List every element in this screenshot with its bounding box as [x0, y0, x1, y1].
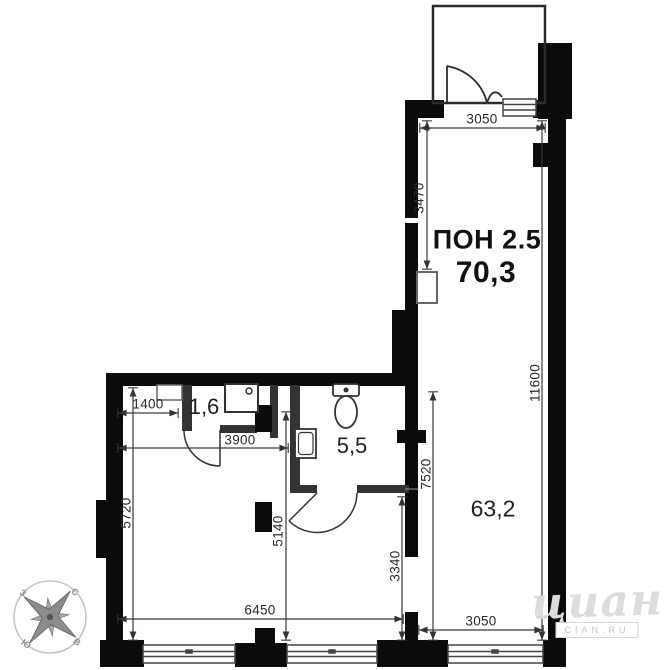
dim-left-height: 5720 [119, 497, 134, 528]
floor-plan-drawing [0, 0, 670, 670]
room-label-shower: 1,6 [189, 394, 220, 420]
bottom-wall-corner-right [543, 640, 566, 667]
bathroom-door [289, 493, 357, 532]
entrance-door-swing-arc [447, 66, 487, 103]
window-right [448, 645, 543, 663]
exterior-walls [96, 43, 572, 667]
bottom-wall-pier-bump [255, 628, 275, 644]
entrance-door-swing-arc-2 [487, 92, 502, 103]
bottom-wall-pier [235, 643, 287, 667]
vestibule-window [503, 99, 536, 116]
vestibule-outline [433, 6, 545, 103]
block-top-wall [106, 373, 418, 386]
dim-bottom-right-width: 3050 [465, 614, 496, 629]
unit-type-label: ПОН 2.5 [433, 225, 541, 256]
left-wall-bump [96, 500, 106, 558]
shower-tray [225, 384, 258, 412]
dim-mid-height: 5140 [271, 515, 286, 546]
entrance-door [447, 66, 502, 104]
room-label-bathroom: 5,5 [337, 433, 368, 459]
floor-plan: ПОН 2.5 70,3 63,2 5,5 1,6 3050 3470 1160… [0, 0, 670, 670]
corridor-left-wall-lower [405, 385, 418, 557]
dim-inner-width: 3900 [224, 433, 255, 448]
dim-top-width: 3050 [466, 112, 497, 127]
room-label-main: 63,2 [471, 496, 516, 523]
dim-niche-width: 1400 [132, 397, 163, 412]
corridor-wall-pier [397, 430, 426, 443]
dim-right-height: 11600 [528, 364, 543, 402]
dim-lower-right-height: 7520 [419, 458, 434, 489]
unit-total-area: 70,3 [456, 256, 516, 290]
window-left [143, 645, 235, 663]
toilet [333, 384, 359, 428]
compass-rose [4, 571, 97, 664]
sink [291, 429, 316, 458]
vent-shaft [417, 272, 437, 303]
window-middle [287, 645, 377, 663]
windows [143, 645, 543, 663]
right-wall-pier [533, 143, 548, 167]
bathroom-bottom-wall-left [300, 485, 317, 493]
dim-upper-height: 3470 [412, 182, 427, 213]
dim-bottom-width: 6450 [244, 603, 275, 618]
dim-passage-height: 3340 [388, 550, 403, 581]
vestibule [433, 6, 545, 116]
bottom-wall-mid-segment [377, 640, 448, 667]
structural-column [255, 502, 272, 532]
bathroom-bottom-wall-right [357, 485, 409, 493]
right-wall [548, 43, 566, 667]
bottom-wall-corner-left [100, 640, 144, 667]
watermark-site: CIAN.RU [555, 622, 638, 638]
wall-joint-gap [405, 218, 418, 223]
